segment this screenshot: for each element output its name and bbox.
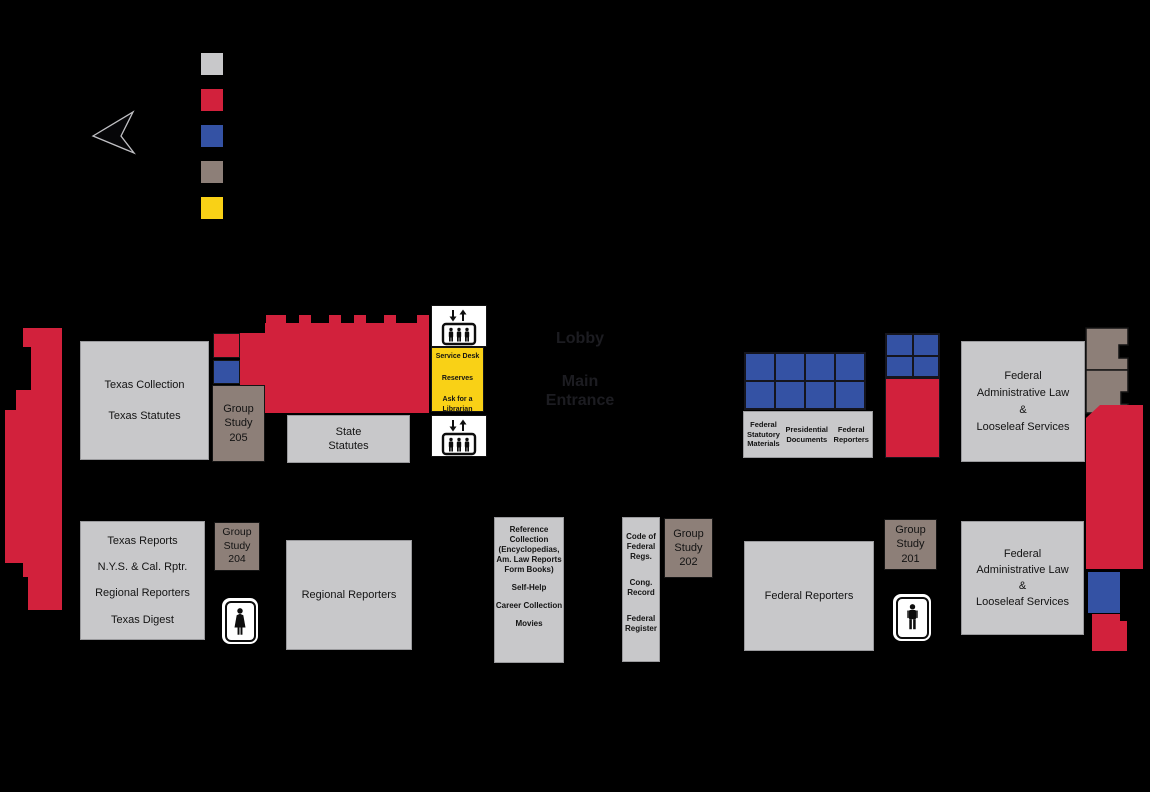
room-label: Federal (834, 425, 869, 435)
room-label: Administrative Law (977, 385, 1069, 402)
room-federal-admin-law-north: Federal Administrative Law & Looseleaf S… (961, 341, 1085, 462)
federal-statutory-shelves (744, 352, 866, 410)
room-regional-reporters: Regional Reporters (286, 540, 412, 650)
room-label: Study (224, 416, 252, 430)
right-red-stacks-block (885, 378, 940, 458)
room-label: Texas Collection (104, 378, 184, 392)
compass-icon (93, 112, 134, 153)
room-label: Movies (515, 619, 542, 629)
elevator-icon (432, 416, 486, 456)
room-federal-reporters-south: Federal Reporters (744, 541, 874, 651)
shelf-cell (776, 382, 804, 408)
room-label: 201 (901, 552, 919, 566)
room-label: Federal (627, 542, 655, 552)
room-label: Documents (785, 435, 828, 445)
main-entrance-line: Main (530, 372, 630, 391)
room-label: Regional Reporters (302, 588, 397, 602)
room-label: Register (625, 624, 657, 634)
right-blue-shelves (885, 333, 940, 378)
man-icon (899, 599, 926, 636)
room-label: N.Y.S. & Cal. Rptr. (98, 560, 188, 574)
room-group-study-202: Group Study 202 (664, 518, 713, 578)
room-group-study-205: Group Study 205 (212, 385, 265, 462)
shelf-cell (746, 382, 774, 408)
room-reference-collection: Reference Collection (Encyclopedias, Am.… (494, 517, 564, 663)
room-group-study-201: Group Study 201 (884, 519, 937, 570)
right-stacks-small-shape (1092, 614, 1127, 651)
room-label: Materials (747, 439, 780, 449)
room-label: Federal (627, 614, 655, 624)
service-desk-label: Reserves (442, 374, 473, 383)
service-desk-label: Ask for a (443, 395, 473, 404)
room-label: Reference (510, 525, 549, 535)
legend-swatch-yellow (201, 197, 223, 219)
legend-swatch-brown (201, 161, 223, 183)
room-label: Career Collection (496, 601, 562, 611)
room-label: Federal (747, 420, 780, 430)
room-label: Statutes (328, 439, 368, 453)
service-desk-label: Service Desk (436, 352, 480, 361)
room-label: Group (895, 523, 926, 537)
room-label: Group (223, 402, 254, 416)
shelf-cell (887, 357, 912, 377)
room-label: Federal (1004, 368, 1041, 385)
room-label: Reporters (834, 435, 869, 445)
room-label: Group (222, 526, 251, 540)
restroom-women-sign (222, 598, 258, 644)
room-label: Texas Statutes (108, 409, 180, 423)
elevator-sign-top (431, 305, 487, 347)
room-label: Regional Reporters (95, 586, 190, 600)
left-stacks-shape (5, 328, 62, 610)
label-federal-statutory-materials: Federal Statutory Materials (747, 420, 780, 449)
room-label: Texas Digest (111, 613, 174, 627)
room-label: Presidential (785, 425, 828, 435)
room-label: & (1019, 578, 1026, 594)
room-texas-reports: Texas Reports N.Y.S. & Cal. Rptr. Region… (80, 521, 205, 640)
right-blue-shelf-block (1088, 572, 1120, 613)
room-label: Collection (510, 535, 549, 545)
main-entrance-line: Entrance (530, 391, 630, 410)
legend-swatch-red (201, 89, 223, 111)
label-federal-reporters: Federal Reporters (834, 425, 869, 444)
blue-shelf-square (213, 360, 240, 384)
shelf-cell (914, 357, 939, 377)
room-label: Federal Reporters (765, 589, 854, 603)
room-label: Administrative Law (976, 562, 1068, 578)
room-label: Study (896, 537, 924, 551)
elevator-sign-bottom (431, 415, 487, 457)
room-code-of-federal-regs: Code of Federal Regs. Cong. Record Feder… (622, 517, 660, 662)
restroom-men-sign (893, 594, 931, 641)
main-entrance-label: Main Entrance (530, 372, 630, 410)
room-label: Cong. (630, 578, 653, 588)
room-label: Texas Reports (107, 534, 177, 548)
room-label: Code of (626, 532, 656, 542)
room-label: 204 (228, 553, 246, 567)
room-label: Statutory (747, 430, 780, 440)
shelf-cell (806, 382, 834, 408)
label-presidential-documents: Presidential Documents (785, 425, 828, 444)
room-group-study-204: Group Study 204 (214, 522, 260, 571)
room-label: Looseleaf Services (976, 594, 1069, 610)
elevator-icon (432, 306, 486, 346)
room-federal-admin-law-south: Federal Administrative Law & Looseleaf S… (961, 521, 1084, 635)
shelf-cell (836, 382, 864, 408)
room-label: Federal (1004, 546, 1041, 562)
shelf-cell (887, 335, 912, 355)
service-desk: Service Desk Reserves Ask for a Libraria… (431, 347, 484, 412)
room-label: Record (627, 588, 655, 598)
right-stacks-shape (1086, 405, 1143, 569)
room-label: & (1019, 402, 1026, 419)
shelf-cell (746, 354, 774, 380)
shelf-cell (836, 354, 864, 380)
federal-statutory-labels: Federal Statutory Materials Presidential… (743, 411, 873, 458)
shelf-cell (776, 354, 804, 380)
room-texas-collection: Texas Collection Texas Statutes (80, 341, 209, 460)
room-label: Group (673, 527, 704, 541)
room-label: Looseleaf Services (977, 419, 1070, 436)
red-shelf-square (213, 333, 240, 358)
room-state-statutes: State Statutes (287, 415, 410, 463)
room-label: Study (224, 540, 251, 554)
shelf-cell (806, 354, 834, 380)
right-shelf-brown-top (1086, 328, 1128, 370)
legend (201, 53, 223, 219)
room-label: Regs. (630, 552, 652, 562)
room-label: Self-Help (512, 583, 547, 593)
legend-swatch-blue (201, 125, 223, 147)
lobby-label: Lobby (540, 329, 620, 348)
shelf-cell (914, 335, 939, 355)
floor-map: Texas Collection Texas Statutes Group St… (0, 0, 1150, 792)
room-label: 205 (229, 431, 247, 445)
service-desk-label: Librarian (443, 405, 473, 414)
room-label: (Encyclopedias, (499, 545, 560, 555)
legend-swatch-gray (201, 53, 223, 75)
center-stacks-shape (240, 315, 429, 413)
room-label: State (336, 425, 362, 439)
room-label: Form Books) (504, 565, 553, 575)
room-label: 202 (679, 555, 697, 569)
room-label: Am. Law Reports (496, 555, 561, 565)
woman-icon (227, 603, 253, 639)
room-label: Study (674, 541, 702, 555)
